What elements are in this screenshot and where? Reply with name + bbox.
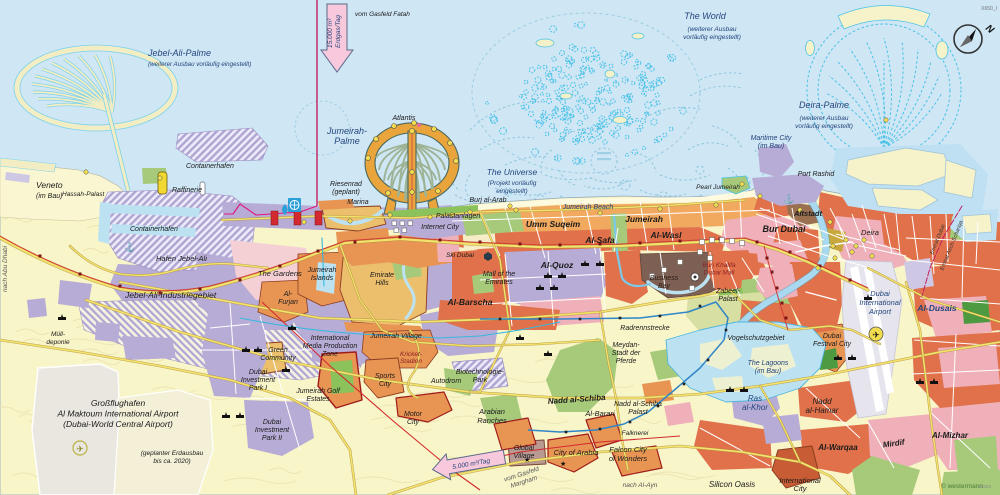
svg-text:ArabianRanches: ArabianRanches <box>477 407 507 425</box>
svg-text:Burj al-Arab: Burj al-Arab <box>470 197 507 204</box>
svg-text:Vogelschutzgebiet: Vogelschutzgebiet <box>728 335 786 342</box>
svg-text:Al-Quoz: Al-Quoz <box>540 260 574 270</box>
svg-text:Atlantis: Atlantis <box>392 115 416 122</box>
svg-text:Al-Dusais: Al-Dusais <box>916 303 956 313</box>
svg-text:Containerhafen: Containerhafen <box>186 163 234 170</box>
svg-text:22034: 22034 <box>978 484 991 489</box>
svg-text:Autodrom: Autodrom <box>430 378 462 385</box>
svg-text:Hassah-Palast: Hassah-Palast <box>62 191 105 198</box>
svg-text:Al-Wasl: Al-Wasl <box>649 230 682 240</box>
svg-text:(im Bau): (im Bau) <box>36 193 62 200</box>
svg-text:Riesenrad(geplant): Riesenrad(geplant) <box>330 181 363 196</box>
svg-text:Falknerei: Falknerei <box>622 430 649 437</box>
svg-text:vom Gasfeld Fatah: vom Gasfeld Fatah <box>355 11 410 18</box>
svg-text:Al-Barari: Al-Barari <box>584 409 615 418</box>
svg-text:GlobalVillage: GlobalVillage <box>514 445 535 460</box>
svg-text:(weiterer Ausbau vorläufig ein: (weiterer Ausbau vorläufig eingestellt) <box>148 61 251 68</box>
svg-text:✈: ✈ <box>76 444 84 454</box>
svg-text:✈: ✈ <box>872 330 880 340</box>
svg-text:Zabeel-Palast: Zabeel-Palast <box>715 288 740 303</box>
svg-text:Pearl Jumeirah: Pearl Jumeirah <box>696 184 740 191</box>
svg-text:The Universe: The Universe <box>487 167 538 177</box>
svg-text:Falcon Cityof Wonders: Falcon Cityof Wonders <box>609 445 648 463</box>
svg-text:⚓: ⚓ <box>124 241 135 252</box>
svg-text:© westermann: © westermann <box>941 482 983 490</box>
svg-text:JumeirahIslands: JumeirahIslands <box>307 267 337 282</box>
svg-text:Altstadt: Altstadt <box>793 209 822 218</box>
svg-text:Al-Mizhar: Al-Mizhar <box>931 431 969 440</box>
svg-text:Containerhafen: Containerhafen <box>130 226 178 233</box>
svg-text:⚓: ⚓ <box>783 193 794 204</box>
svg-text:Hafen Jebel-Ali: Hafen Jebel-Ali <box>156 254 207 263</box>
svg-text:15.000 m³: 15.000 m³ <box>327 18 334 48</box>
svg-text:The World: The World <box>684 11 727 21</box>
svg-text:(weiterer Ausbauvorläufig eing: (weiterer Ausbauvorläufig eingestellt) <box>683 26 741 41</box>
svg-text:Al-Barscha: Al-Barscha <box>447 297 493 307</box>
svg-text:Al-Warqaa: Al-Warqaa <box>817 443 858 452</box>
svg-text:Internet City: Internet City <box>421 224 459 231</box>
svg-text:Kricket-Stadion: Kricket-Stadion <box>400 351 423 365</box>
svg-text:Deira: Deira <box>861 228 879 237</box>
svg-text:Umm Suqeim: Umm Suqeim <box>526 219 581 229</box>
svg-text:(weiterer Ausbauvorläufig eing: (weiterer Ausbauvorläufig eingestellt) <box>795 115 853 130</box>
svg-text:Palastanlagen: Palastanlagen <box>436 213 480 220</box>
svg-text:nach Abu Dhabi: nach Abu Dhabi <box>2 245 9 292</box>
svg-text:Raffinerie: Raffinerie <box>172 187 202 194</box>
svg-text:Jebel-Ali-Industriegebiet: Jebel-Ali-Industriegebiet <box>124 290 217 300</box>
svg-text:Silicon Oasis: Silicon Oasis <box>709 480 755 489</box>
svg-text:Marina: Marina <box>347 199 369 206</box>
svg-text:Ski Dubai: Ski Dubai <box>446 252 474 259</box>
svg-text:City of Arabia: City of Arabia <box>554 448 599 457</box>
svg-text:Al-Safa: Al-Safa <box>584 235 615 245</box>
svg-text:Bur Dubai: Bur Dubai <box>762 224 806 234</box>
svg-text:Port Rashid: Port Rashid <box>798 171 836 178</box>
svg-text:Jumeirah Beach: Jumeirah Beach <box>562 204 614 211</box>
svg-text:Radrennstrecke: Radrennstrecke <box>620 325 670 332</box>
svg-text:Deira-Palme: Deira-Palme <box>799 100 849 110</box>
svg-text:X650_I: X650_I <box>981 6 997 12</box>
svg-text:Burj KhalifaDubai Mall: Burj KhalifaDubai Mall <box>702 262 736 277</box>
svg-text:Jumeirah: Jumeirah <box>625 214 663 224</box>
svg-text:Jumeirah Village: Jumeirah Village <box>369 333 422 340</box>
svg-text:nach Al-Ayn: nach Al-Ayn <box>623 482 658 489</box>
svg-text:Erdgas/Tag: Erdgas/Tag <box>335 15 342 48</box>
svg-text:Mall of theEmirates: Mall of theEmirates <box>483 271 515 286</box>
svg-text:★: ★ <box>560 460 566 468</box>
svg-text:Jebel-Ali-Palme: Jebel-Ali-Palme <box>147 48 211 58</box>
svg-text:The Gardens: The Gardens <box>258 269 302 278</box>
svg-text:Veneto: Veneto <box>36 180 63 190</box>
